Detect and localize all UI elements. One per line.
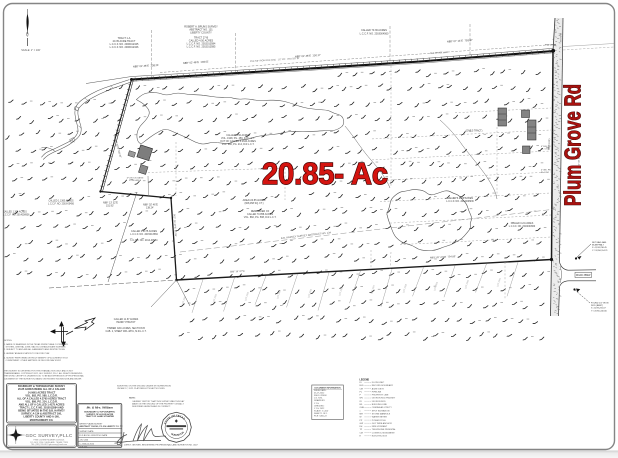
svg-text:TEL: (281) 555-0123 gdcsurve: TEL: (281) 555-0123 gdcsurvey@mail.com [31,443,67,446]
svg-text:FND 5/8" IR: FND 5/8" IR [545,45,557,47]
svg-text:W: W [360,417,362,419]
svg-text:OHE: OHE [360,407,365,409]
svg-text:MADE ON THE GROUND OF THE PROP: MADE ON THE GROUND OF THE PROPERTY LEGAL… [132,403,185,406]
svg-text:L.C.C.F. NO. 2006012346: L.C.C.F. NO. 2006012346 [110,46,139,49]
svg-text:MONTGOMERY CO.: MONTGOMERY CO. [30,419,54,422]
svg-text:L.C.C.F. NO. 2014-00584: L.C.C.F. NO. 2014-00584 [131,239,159,242]
svg-text:VOL. 882, PG. 588, D.R.L.C.T.: VOL. 882, PG. 588, D.R.L.C.T. [244,216,277,219]
svg-text:SCALE: 1" = 100': SCALE: 1" = 100' [21,49,41,52]
svg-text:3. HEREBY AN ASSOCIATION TO RE: 3. HEREBY AN ASSOCIATION TO RECORD PLAT. [4,352,50,355]
svg-text:BUILDING LINE: BUILDING LINE [372,404,388,406]
svg-text:GW: GW [360,423,364,425]
svg-text:SYSTEM, CENTRAL ZONE, NAD 83.: SYSTEM, CENTRAL ZONE, NAD 83. DISTANCES … [4,346,66,349]
svg-text:J.N. 5456: J.N. 5456 [80,439,89,441]
svg-text:TELEPHONE PEDESTAL: TELEPHONE PEDESTAL [372,428,397,431]
svg-text:MH: MH [360,414,364,416]
svg-text:5/8 IRON ROD: 5/8 IRON ROD [372,401,386,403]
svg-text:ABSTRACT 134/160, PG 214 LIBER: ABSTRACT 134/160, PG 214 LIBERTY CO. TX [80,425,124,428]
svg-text:SET MAG NAIL: SET MAG NAIL [592,241,607,244]
svg-text:THIS SURVEY IS CERTIFIED FOR T: THIS SURVEY IS CERTIFIED FOR THIS TRANSA… [4,370,74,373]
svg-text:JUDGMENT BY THE SURVEYOR, BASE: JUDGMENT BY THE SURVEYOR, BASED ON HIS B… [4,377,82,380]
svg-text:CAB. 2, SHEET 486–487A, M.R.L.: CAB. 2, SHEET 486–487A, M.R.L.C.T. [105,330,146,333]
svg-text:L.C.C.F. NO. 2015013584: L.C.C.F. NO. 2015013584 [130,233,158,236]
svg-text:Y: 13,955,410.66: Y: 13,955,410.66 [591,310,608,312]
svg-text:OVERHEAD UTILITY: OVERHEAD UTILITY [372,406,393,409]
svg-text:Plum Grove Rd: Plum Grove Rd [560,84,586,206]
svg-text:DESCRIBED HEREON AND IS CORREC: DESCRIBED HEREON AND IS CORRECT. [132,405,171,408]
svg-text:2. SUBJECT TO ANY AND ALL EASE: 2. SUBJECT TO ANY AND ALL EASEMENTS AND … [4,348,66,351]
svg-text:GUY WIRE ANCHOR: GUY WIRE ANCHOR [372,422,392,425]
svg-text:20.85- Ac: 20.85- Ac [262,156,388,191]
svg-text:CONTROL MONUMENT: CONTROL MONUMENT [372,432,396,434]
svg-text:5/8 IRON ROD FND/SET: 5/8 IRON ROD FND/SET [372,398,396,400]
svg-text:L.C.C.F. NO. 2015013585: L.C.C.F. NO. 2015013585 [187,46,216,49]
svg-text:BLD: BLD [360,385,365,387]
svg-text:CIR: CIR [360,388,364,390]
svg-text:Mr. & Mrs. William: Mr. & Mrs. William [87,406,114,410]
svg-text:SURVEY DATE:: SURVEY DATE: [80,430,95,433]
svg-text:JOHN T. GROVER, REGISTERED PRO: JOHN T. GROVER, REGISTERED PROFESSIONAL … [124,444,199,447]
svg-text:STORM MANHOLE: STORM MANHOLE [372,413,391,416]
svg-text:L.C.C.F. NO. 2019-00456: L.C.C.F. NO. 2019-00456 [48,204,75,206]
svg-text:Y: 13,956,114.21: Y: 13,956,114.21 [592,250,608,252]
svg-text:POND AREA: POND AREA [129,179,142,182]
svg-text:WATER METER: WATER METER [372,416,388,419]
svg-text:ACRE 5/8 IR: ACRE 5/8 IR [372,387,384,390]
svg-text:LIBERTY COUNTY: LIBERTY COUNTY [190,32,212,35]
svg-text:IN ASPHALT: IN ASPHALT [592,244,605,247]
svg-text:I HEREBY CERTIFY THAT THIS SUR: I HEREBY CERTIFY THAT THIS SURVEY WAS TH… [132,400,185,403]
svg-text:VOL. 886, PG. 214, D.R.L.C.T.: VOL. 886, PG. 214, D.R.L.C.T. [222,143,255,146]
svg-text:NOTES:: NOTES: [4,340,13,342]
svg-text:TRACT OF LAND SITUATED: TRACT OF LAND SITUATED [86,415,115,418]
svg-text:L.C.C.F. NO. 2019004560: L.C.C.F. NO. 2019004560 [360,33,389,36]
svg-text:151.93': 151.93' [106,205,114,208]
svg-text:ON MAY 17, 2022. PLAT REFLECTS: ON MAY 17, 2022. PLAT REFLECTS FACTS FOU… [117,387,166,390]
svg-text:FILE: 5456-22: FILE: 5456-22 [314,416,328,418]
svg-text:L.C.C.F. NO. 2014008936: L.C.C.F. NO. 2014008936 [3,215,30,217]
svg-text:THE WORD CERTIFY IS UNDERSTOOD: THE WORD CERTIFY IS UNDERSTOOD TO BE AN … [4,375,85,378]
svg-text:45' R.O.W.: 45' R.O.W. [559,33,561,43]
svg-text:PIPELINE: PIPELINE [372,391,382,393]
svg-text:FLD BOOK: 05/2022 NO DATE: FLD BOOK: 05/2022 NO DATE [80,434,108,437]
svg-text:POWER POLE: POWER POLE [372,420,387,422]
svg-text:(60' R.O.W.): (60' R.O.W.) [549,138,551,150]
svg-text:W-B 456: W-B 456 [80,446,89,448]
svg-text:SPOT ELEVATION: SPOT ELEVATION [372,409,390,412]
svg-text:GDC SURVEY,PLLC: GDC SURVEY,PLLC [26,433,73,438]
svg-text:CM: CM [360,432,364,434]
svg-text:(P) WOOD BARN: (P) WOOD BARN [127,177,144,180]
svg-text:ISSUE DATE:: ISSUE DATE: [314,389,327,392]
svg-text:DOCUMENT INFORMATION: DOCUMENT INFORMATION [314,386,341,389]
svg-text:1. BASIS OF BEARINGS IS THE TE: 1. BASIS OF BEARINGS IS THE TEXAS STATE … [4,343,69,346]
svg-text:FIRE HYDRANT: FIRE HYDRANT [372,425,388,428]
svg-text:COMMITMENT. OTHER MATTERS OF R: COMMITMENT. OTHER MATTERS OF RECORD MAY … [4,359,62,362]
svg-text:DRAWN BY:: DRAWN BY: [314,399,326,402]
svg-text:FLOW LINE?: FLOW LINE? [372,382,385,384]
svg-text:FH: FH [360,426,363,428]
svg-text:TRANSFERABLE. COPYRIGHT 2022,: TRANSFERABLE. COPYRIGHT 2022, GDC SURVEY… [4,372,83,375]
svg-text:NOTE:: NOTE: [129,398,136,400]
svg-text:SCALE: 1"=100': SCALE: 1"=100' [314,409,329,412]
svg-text:RECORD BOUNDARY: RECORD BOUNDARY [372,384,394,387]
svg-text:ROAD 35MW: ROAD 35MW [576,274,591,277]
svg-text:(908,458 SQ. FT.): (908,458 SQ. FT.) [245,202,264,205]
svg-text:CALLED 1.305 ACRES: CALLED 1.305 ACRES [3,211,27,214]
svg-text:CALLED 0.24 ACRES: CALLED 0.24 ACRES [511,222,534,225]
svg-text:138.24': 138.24' [146,207,154,210]
svg-text:ELECTRIC BOX: ELECTRIC BOX [372,436,388,438]
svg-text:4. SURVEY PERFORMED WITHOUT BE: 4. SURVEY PERFORMED WITHOUT BENEFIT OF A… [4,357,68,360]
svg-text:L.C.C.F. NO. 2019004560: L.C.C.F. NO. 2019004560 [509,226,536,228]
svg-text:(ONE 5 TRACT): (ONE 5 TRACT) [466,130,483,133]
svg-text:EL: 57.0': EL: 57.0' [541,172,549,174]
svg-text:HENRY PHILPOT: HENRY PHILPOT [116,321,136,324]
svg-text:PROPERTY LINE: PROPERTY LINE [372,395,389,397]
svg-text:CALLED 1.1365 ACRES: CALLED 1.1365 ACRES [48,200,73,203]
svg-text:L.C.C.F. NO. 2014008936: L.C.C.F. NO. 2014008936 [446,200,474,203]
